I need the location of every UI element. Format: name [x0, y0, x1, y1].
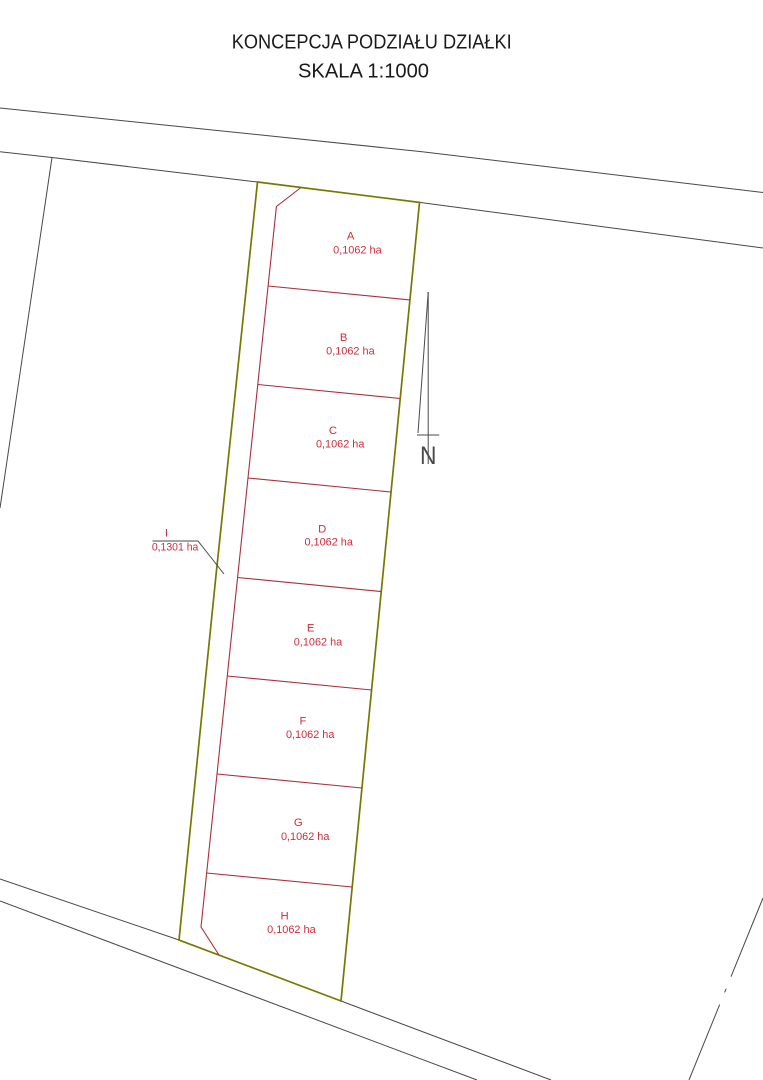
- svg-text:B: B: [340, 332, 348, 344]
- svg-text:H: H: [281, 911, 289, 923]
- svg-text:0,1062 ha: 0,1062 ha: [294, 636, 343, 648]
- svg-text:KONCEPCJA PODZIAŁU DZIAŁKI: KONCEPCJA PODZIAŁU DZIAŁKI: [232, 31, 512, 53]
- svg-text:F: F: [300, 716, 307, 728]
- svg-text:0,1062 ha: 0,1062 ha: [286, 729, 335, 741]
- svg-text:I: I: [165, 527, 168, 539]
- svg-text:0,1062 ha: 0,1062 ha: [267, 924, 316, 936]
- svg-text:N: N: [420, 442, 437, 470]
- svg-text:0,1062 ha: 0,1062 ha: [316, 439, 365, 451]
- svg-text:SKALA 1:1000: SKALA 1:1000: [298, 60, 429, 82]
- svg-text:0,1062 ha: 0,1062 ha: [281, 831, 330, 843]
- svg-text:G: G: [294, 817, 303, 829]
- svg-text:E: E: [307, 623, 315, 635]
- svg-text:A: A: [347, 231, 355, 243]
- svg-text:0,1062 ha: 0,1062 ha: [304, 536, 353, 548]
- svg-text:0,1062 ha: 0,1062 ha: [333, 245, 382, 257]
- svg-text:0,1062 ha: 0,1062 ha: [326, 345, 375, 357]
- svg-text:0,1301 ha: 0,1301 ha: [152, 542, 199, 554]
- svg-text:C: C: [329, 425, 337, 437]
- svg-text:D: D: [318, 523, 326, 535]
